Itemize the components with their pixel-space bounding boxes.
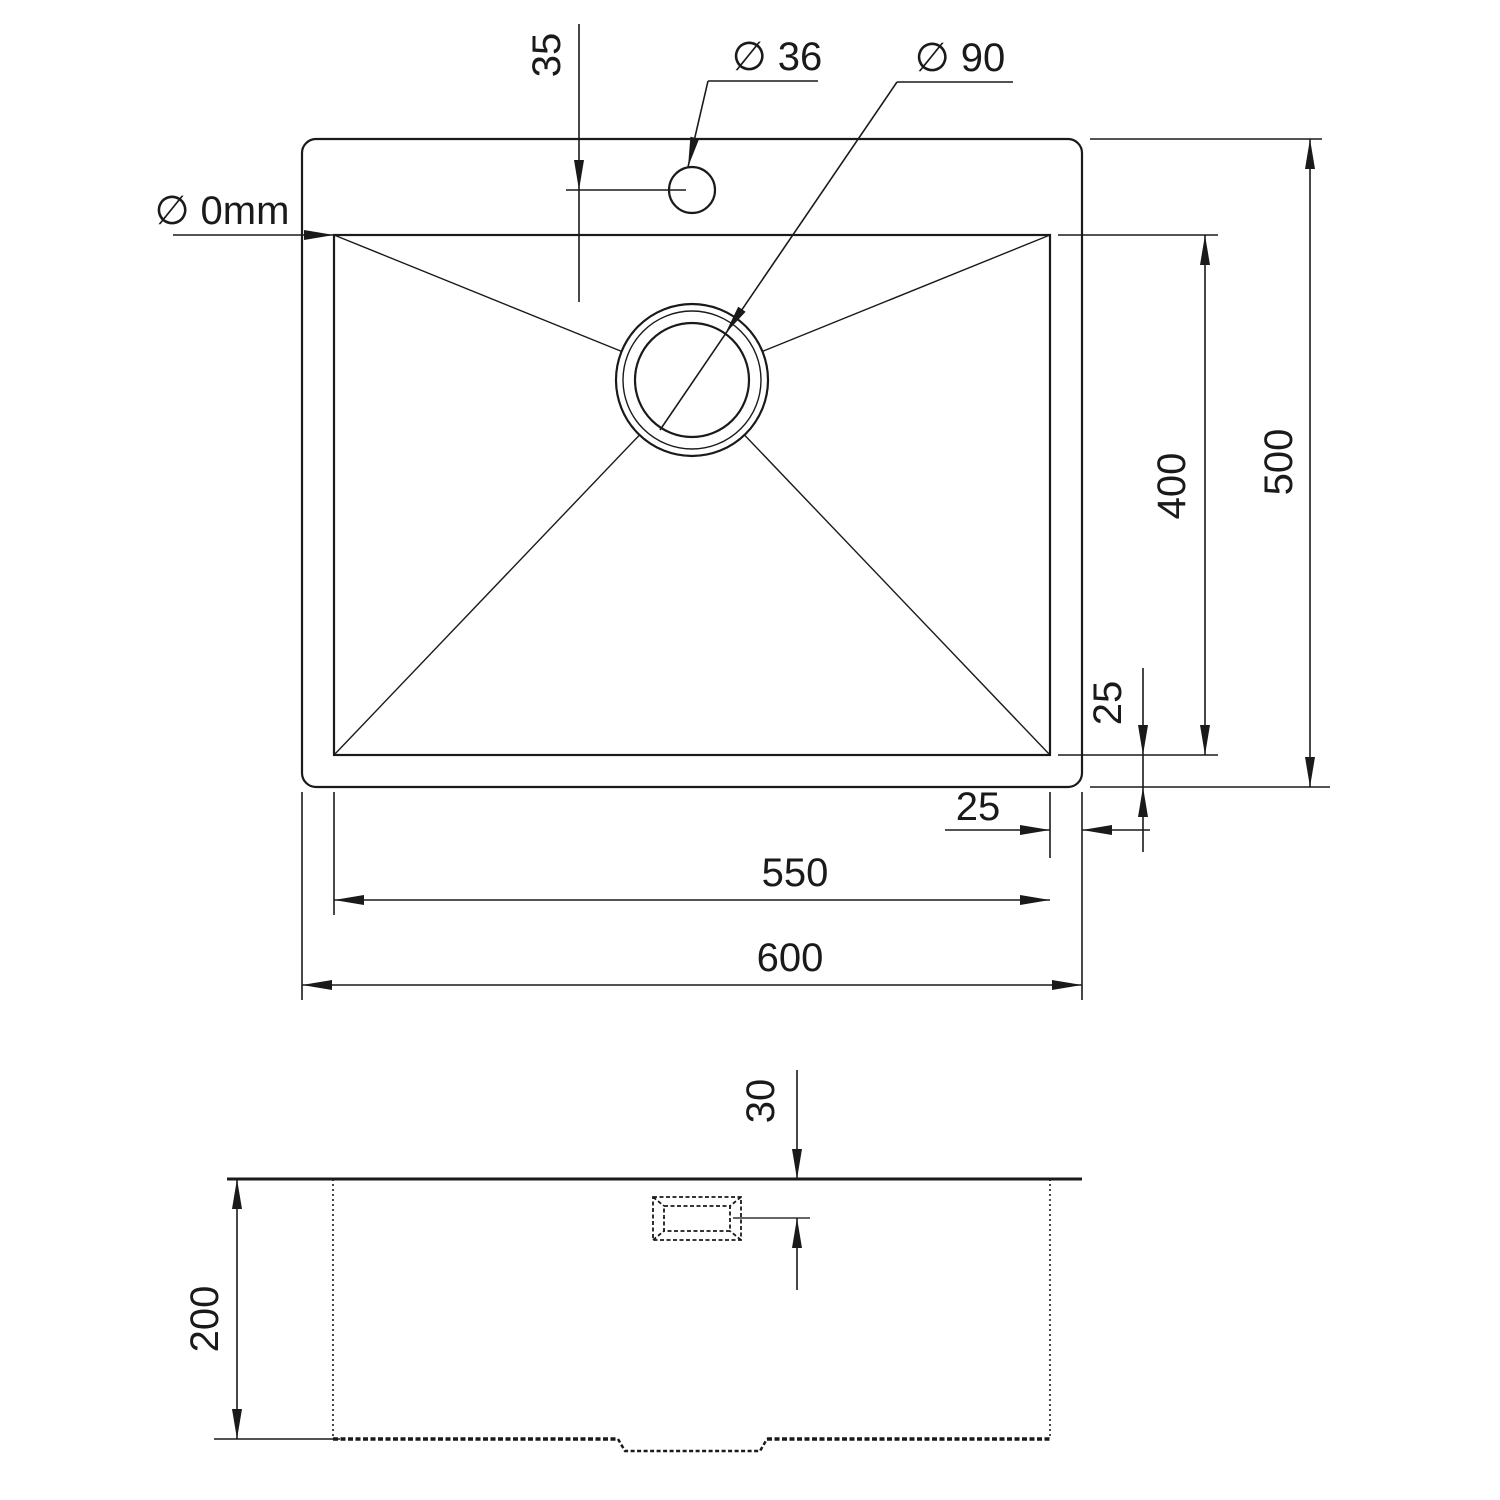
sink-technical-drawing: 35 ∅ 0mm ∅ 36 ∅ 90 400 xyxy=(0,0,1500,1500)
side-view xyxy=(214,1179,1082,1451)
drawing-canvas: 35 ∅ 0mm ∅ 36 ∅ 90 400 xyxy=(0,0,1500,1500)
dim-bowl-height-label: 200 xyxy=(183,1286,227,1353)
dim-corner-radius-label: ∅ 0mm xyxy=(155,189,290,233)
dim-overall-width: 600 xyxy=(302,936,1082,990)
drain-flange xyxy=(616,304,768,456)
dim-basin-depth-label: 400 xyxy=(1150,453,1194,520)
dim-right-gap-label: 25 xyxy=(956,785,1001,829)
dim-drain-diameter: ∅ 90 xyxy=(660,36,1013,430)
top-view xyxy=(302,139,1082,787)
dim-overall-depth-label: 500 xyxy=(1257,429,1301,496)
dim-basin-width-label: 550 xyxy=(762,851,829,895)
sink-basin xyxy=(334,235,1050,755)
overflow-hole xyxy=(653,1197,741,1240)
side-bowl-bottom xyxy=(333,1439,1050,1451)
dim-bowl-height: 200 xyxy=(183,1179,242,1439)
dim-faucet-offset: 35 xyxy=(525,24,584,302)
dim-drain-diameter-label: ∅ 90 xyxy=(915,36,1005,80)
dim-right-gap: 25 xyxy=(945,785,1150,835)
basin-corner-creases xyxy=(334,235,1050,755)
dim-bottom-gap-label: 25 xyxy=(1086,681,1130,726)
dim-corner-radius: ∅ 0mm xyxy=(155,189,334,240)
dim-faucet-diameter-label: ∅ 36 xyxy=(732,35,822,79)
dim-basin-width: 550 xyxy=(334,851,1050,905)
dim-overall-depth: 500 xyxy=(1257,139,1315,787)
dim-bottom-gap: 25 xyxy=(1086,668,1148,852)
dim-basin-depth: 400 xyxy=(1150,235,1210,755)
sink-outer-rim xyxy=(302,139,1082,787)
dim-faucet-offset-label: 35 xyxy=(525,33,569,78)
dim-overall-width-label: 600 xyxy=(757,936,824,980)
dim-overflow-offset-label: 30 xyxy=(739,1079,783,1124)
dim-faucet-diameter: ∅ 36 xyxy=(688,35,822,167)
